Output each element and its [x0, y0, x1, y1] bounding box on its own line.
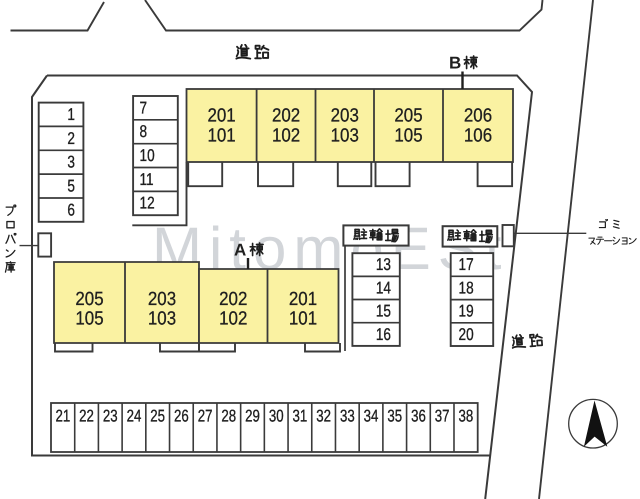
svg-text:13: 13	[376, 255, 391, 274]
svg-text:101: 101	[207, 126, 235, 147]
svg-text:27: 27	[198, 407, 213, 426]
svg-text:19: 19	[459, 302, 474, 321]
svg-text:7: 7	[140, 98, 148, 117]
svg-text:18: 18	[459, 278, 474, 297]
svg-text:106: 106	[464, 126, 492, 147]
svg-text:24: 24	[127, 407, 142, 426]
svg-text:33: 33	[340, 407, 355, 426]
svg-text:203: 203	[331, 106, 359, 127]
svg-text:105: 105	[394, 126, 422, 147]
svg-text:205: 205	[394, 106, 422, 127]
svg-text:31: 31	[293, 407, 308, 426]
svg-text:14: 14	[376, 278, 391, 297]
svg-text:17: 17	[459, 255, 474, 274]
svg-text:101: 101	[289, 309, 317, 330]
svg-text:102: 102	[272, 126, 300, 147]
svg-text:2: 2	[67, 129, 75, 148]
svg-text:3: 3	[67, 153, 75, 172]
svg-text:10: 10	[140, 146, 155, 165]
svg-text:11: 11	[140, 170, 154, 189]
svg-text:36: 36	[411, 407, 426, 426]
svg-text:16: 16	[376, 325, 391, 344]
svg-text:6: 6	[67, 200, 75, 219]
svg-text:35: 35	[387, 407, 402, 426]
svg-text:201: 201	[207, 106, 235, 127]
svg-text:201: 201	[289, 289, 317, 310]
svg-text:38: 38	[458, 407, 473, 426]
svg-text:15: 15	[376, 302, 391, 321]
svg-text:203: 203	[148, 289, 176, 310]
svg-text:37: 37	[435, 407, 450, 426]
svg-text:5: 5	[67, 177, 75, 196]
svg-text:A: A	[234, 241, 246, 260]
svg-text:1: 1	[67, 105, 75, 124]
svg-text:202: 202	[272, 106, 300, 127]
svg-text:30: 30	[269, 407, 284, 426]
svg-text:28: 28	[221, 407, 236, 426]
svg-text:B: B	[449, 54, 461, 73]
svg-text:12: 12	[140, 194, 155, 213]
svg-text:8: 8	[140, 122, 148, 141]
svg-text:23: 23	[103, 407, 118, 426]
svg-text:29: 29	[245, 407, 260, 426]
svg-text:26: 26	[174, 407, 189, 426]
svg-text:20: 20	[459, 325, 474, 344]
svg-text:105: 105	[75, 309, 103, 330]
svg-text:25: 25	[150, 407, 165, 426]
svg-text:34: 34	[364, 407, 379, 426]
svg-text:206: 206	[464, 106, 492, 127]
svg-text:21: 21	[55, 407, 70, 426]
svg-text:103: 103	[148, 309, 176, 330]
svg-text:102: 102	[219, 309, 247, 330]
svg-text:32: 32	[316, 407, 331, 426]
svg-text:103: 103	[331, 126, 359, 147]
svg-text:202: 202	[219, 289, 247, 310]
svg-text:205: 205	[75, 289, 103, 310]
svg-text:22: 22	[79, 407, 94, 426]
